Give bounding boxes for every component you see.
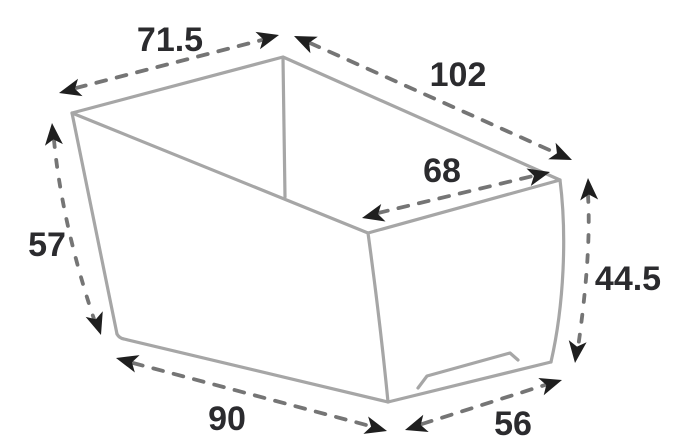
dimension-56: 56	[402, 371, 564, 438]
diagram-canvas: 71.5 102 68 57 44.5	[0, 0, 690, 438]
dim-71-5-arrow-right-icon	[255, 26, 281, 49]
dim-102-arrow-right-icon	[548, 143, 575, 168]
dim-56-label: 56	[494, 405, 532, 438]
front-corner-edge-line	[368, 233, 388, 402]
dim-102-arrow-left-icon	[290, 28, 317, 53]
dim-68-arrow-left-icon	[360, 204, 386, 227]
dim-56-arrow-left-icon	[402, 415, 428, 438]
dim-71-5-label: 71.5	[137, 21, 203, 59]
bottom-right-edge-line	[388, 362, 551, 402]
dim-44-5-arrow-bottom-icon	[566, 340, 587, 364]
dim-102-label: 102	[430, 56, 487, 94]
dimension-102: 102	[290, 28, 575, 168]
inner-corner-seam-line	[283, 58, 285, 197]
dimension-44-5: 44.5	[566, 178, 661, 365]
dim-56-arrow-right-icon	[538, 371, 564, 395]
dim-90-arrow-right-icon	[363, 417, 389, 438]
dimension-71-5: 71.5	[57, 21, 282, 102]
dim-44-5-dash-line	[578, 195, 589, 348]
dim-71-5-arrow-left-icon	[57, 79, 83, 102]
left-edge-line	[72, 113, 117, 334]
dim-90-label: 90	[208, 400, 246, 438]
dim-90-arrow-left-icon	[114, 349, 140, 372]
dim-44-5-label: 44.5	[595, 260, 661, 298]
container-sketch	[72, 57, 564, 402]
dim-90-dash-line	[133, 363, 370, 426]
dim-57-label: 57	[28, 226, 66, 264]
dimension-sketch-svg: 71.5 102 68 57 44.5	[0, 0, 690, 438]
dim-68-label: 68	[423, 152, 461, 190]
right-edge-line	[551, 180, 564, 362]
rim-outline	[72, 57, 560, 233]
dim-57-arrow-bottom-icon	[86, 311, 110, 337]
